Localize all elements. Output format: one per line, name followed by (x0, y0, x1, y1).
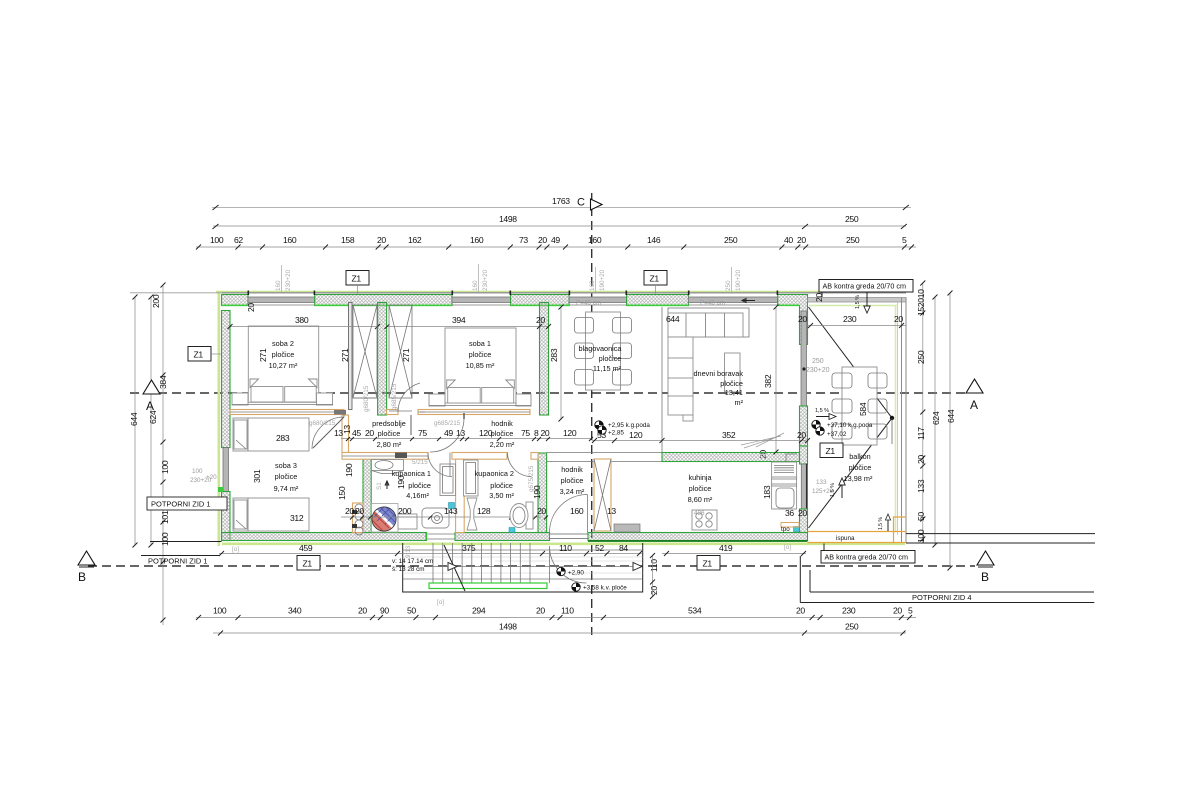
svg-text:160: 160 (588, 235, 602, 245)
svg-text:340: 340 (288, 606, 302, 616)
svg-text:20: 20 (345, 506, 354, 516)
svg-text:4,16m²: 4,16m² (406, 491, 429, 500)
svg-text:B: B (78, 570, 86, 584)
svg-text:36: 36 (785, 508, 794, 518)
svg-text:250: 250 (812, 358, 824, 365)
svg-text:soba 2: soba 2 (272, 339, 294, 348)
svg-text:1498: 1498 (499, 622, 517, 632)
svg-text:84: 84 (619, 543, 628, 553)
svg-text:160: 160 (470, 235, 484, 245)
svg-text:382: 382 (763, 374, 773, 388)
svg-text:B: B (981, 570, 989, 584)
svg-text:2,80 m²: 2,80 m² (377, 440, 402, 449)
svg-text:2,20 m²: 2,20 m² (490, 440, 515, 449)
svg-text:200: 200 (151, 294, 161, 308)
svg-text:POTPORNI ZID 4: POTPORNI ZID 4 (912, 593, 972, 602)
svg-text:20: 20 (536, 606, 545, 616)
svg-text:1498: 1498 (499, 214, 517, 224)
svg-text:117: 117 (916, 427, 926, 440)
svg-text:pločice: pločice (599, 354, 622, 363)
svg-text:pločice: pločice (561, 476, 584, 485)
svg-text:380: 380 (295, 315, 309, 325)
svg-text:g680/215: g680/215 (309, 420, 336, 427)
svg-text:Z1: Z1 (194, 350, 204, 360)
svg-text:pločice: pločice (689, 484, 712, 493)
svg-text:312: 312 (290, 513, 304, 523)
svg-text:128: 128 (477, 506, 491, 516)
svg-text:250: 250 (724, 235, 738, 245)
svg-text:20: 20 (541, 428, 550, 438)
svg-text:20: 20 (798, 508, 807, 518)
svg-text:644: 644 (129, 412, 139, 426)
svg-text:3,50 m²: 3,50 m² (489, 491, 514, 500)
svg-text:1763: 1763 (552, 196, 570, 206)
svg-text:49: 49 (551, 235, 560, 245)
svg-text:13: 13 (342, 425, 352, 434)
svg-text:100: 100 (213, 606, 227, 616)
svg-text:100: 100 (210, 235, 224, 245)
svg-text:8: 8 (534, 428, 539, 438)
svg-text:394: 394 (452, 315, 466, 325)
svg-text:45: 45 (352, 428, 361, 438)
svg-text:20: 20 (649, 586, 659, 595)
svg-text:balkon: balkon (849, 452, 871, 461)
svg-text:pločice: pločice (408, 481, 431, 490)
svg-text:384: 384 (158, 375, 168, 389)
svg-text:P=40 cm: P=40 cm (700, 300, 725, 307)
svg-text:162: 162 (408, 235, 422, 245)
svg-text:110: 110 (649, 559, 659, 572)
svg-text:271: 271 (401, 348, 411, 362)
svg-text:62: 62 (234, 235, 243, 245)
svg-text:250: 250 (725, 280, 732, 291)
svg-text:301: 301 (252, 469, 262, 483)
svg-text:624: 624 (931, 411, 941, 425)
svg-text:50: 50 (407, 606, 416, 616)
svg-text:C: C (577, 197, 585, 209)
svg-text:200: 200 (398, 506, 412, 516)
svg-text:pločice: pločice (720, 379, 743, 388)
svg-text:pločice: pločice (491, 429, 514, 438)
svg-text:190: 190 (396, 475, 406, 489)
svg-text:pločice: pločice (378, 429, 401, 438)
svg-text:100: 100 (160, 460, 170, 474)
svg-text:9 13: 9 13 (405, 545, 412, 558)
svg-text:[o]: [o] (232, 546, 239, 553)
svg-text:20: 20 (797, 235, 806, 245)
svg-text:10,85 m²: 10,85 m² (466, 361, 495, 370)
svg-text:40: 40 (784, 235, 793, 245)
svg-text:m²: m² (734, 398, 743, 407)
svg-text:pločice: pločice (469, 350, 492, 359)
svg-text:52: 52 (595, 543, 604, 553)
svg-text:5: 5 (902, 235, 907, 245)
svg-text:459: 459 (299, 543, 313, 553)
svg-text:+3,58 k.v. ploče: +3,58 k.v. ploče (583, 585, 627, 592)
svg-text:644: 644 (666, 314, 680, 324)
svg-text:+37,02: +37,02 (827, 431, 847, 438)
svg-text:pločice: pločice (849, 463, 872, 472)
svg-text:13,41: 13,41 (725, 388, 743, 397)
svg-text:9,74 m²: 9,74 m² (274, 484, 299, 493)
svg-text:644: 644 (946, 409, 956, 423)
svg-text:20: 20 (537, 506, 546, 516)
svg-text:soba 1: soba 1 (469, 339, 491, 348)
svg-text:230+20: 230+20 (285, 269, 292, 291)
svg-text:Z1: Z1 (650, 274, 660, 284)
svg-text:20: 20 (893, 606, 902, 616)
svg-text:160: 160 (275, 280, 282, 291)
svg-text:50: 50 (916, 512, 926, 521)
svg-text:20: 20 (797, 430, 806, 440)
svg-text:pločice: pločice (490, 481, 513, 490)
svg-text:+2,90: +2,90 (568, 570, 584, 577)
svg-text:250: 250 (916, 350, 926, 364)
svg-text:190: 190 (532, 485, 542, 499)
svg-text:Z1: Z1 (303, 559, 313, 569)
svg-text:190+20: 190+20 (599, 269, 606, 291)
svg-text:v: 14 17.14 cm: v: 14 17.14 cm (392, 558, 433, 565)
svg-text:90: 90 (380, 606, 389, 616)
svg-text:AB kontra greda 20/70 cm: AB kontra greda 20/70 cm (825, 553, 909, 562)
svg-text:kupaonica 2: kupaonica 2 (475, 469, 514, 478)
svg-text:20: 20 (358, 606, 367, 616)
svg-text:20: 20 (365, 428, 374, 438)
svg-text:160: 160 (570, 506, 584, 516)
svg-text:ispuna: ispuna (836, 535, 855, 542)
svg-text:POTPORNI ZID 1: POTPORNI ZID 1 (148, 557, 208, 566)
svg-text:POTPORNI ZID 1: POTPORNI ZID 1 (151, 500, 211, 509)
svg-text:20: 20 (355, 506, 364, 516)
svg-text:160: 160 (283, 235, 297, 245)
svg-text:534: 534 (688, 606, 702, 616)
svg-text:152010: 152010 (916, 289, 926, 316)
svg-text:271: 271 (340, 348, 350, 362)
svg-text:49: 49 (444, 428, 453, 438)
svg-text:hodnik: hodnik (561, 465, 583, 474)
svg-text:20: 20 (377, 235, 386, 245)
svg-text:250: 250 (846, 235, 860, 245)
svg-text:75: 75 (521, 428, 530, 438)
svg-text:230: 230 (842, 606, 856, 616)
svg-text:13,98 m²: 13,98 m² (844, 474, 873, 483)
svg-text:+20: +20 (206, 474, 217, 481)
svg-text:dnevni boravak: dnevni boravak (694, 369, 744, 378)
svg-text:tpo: tpo (781, 526, 790, 533)
svg-text:133: 133 (816, 479, 827, 486)
svg-text:13: 13 (607, 506, 616, 516)
svg-text:110: 110 (559, 543, 572, 553)
svg-text:10,27 m²: 10,27 m² (269, 361, 298, 370)
svg-text:20: 20 (536, 315, 545, 325)
svg-text:[o]: [o] (784, 544, 791, 551)
svg-text:soba 3: soba 3 (275, 461, 297, 470)
svg-text:S1: S1 (376, 482, 383, 490)
svg-text:AB kontra greda 20/70 cm: AB kontra greda 20/70 cm (823, 282, 907, 291)
svg-text:kuhinja: kuhinja (688, 473, 712, 482)
svg-text:20: 20 (796, 606, 805, 616)
svg-text:1,5 %: 1,5 % (815, 408, 829, 414)
svg-text:271: 271 (258, 348, 268, 362)
svg-text:100: 100 (192, 468, 203, 475)
svg-text:352: 352 (722, 430, 736, 440)
svg-text:11,15 m²: 11,15 m² (593, 364, 622, 373)
svg-text:20: 20 (798, 314, 807, 324)
svg-text:A: A (146, 399, 154, 413)
svg-text:20: 20 (916, 455, 926, 464)
svg-text:[o]: [o] (437, 599, 444, 606)
svg-text:75: 75 (418, 428, 427, 438)
svg-text:146: 146 (647, 235, 661, 245)
svg-text:100: 100 (916, 529, 926, 543)
svg-text:5: 5 (908, 606, 913, 616)
svg-text:250: 250 (845, 622, 859, 632)
svg-text:g685/215: g685/215 (391, 383, 398, 410)
svg-text:Z1: Z1 (703, 559, 713, 569)
svg-text:g685/215: g685/215 (434, 420, 461, 427)
svg-text:584: 584 (858, 402, 868, 416)
svg-text:+2,95 k.g.poda: +2,95 k.g.poda (608, 422, 650, 429)
svg-text:8,60 m²: 8,60 m² (688, 495, 713, 504)
svg-text:+2,85: +2,85 (608, 430, 624, 437)
svg-text:predsoblje: predsoblje (372, 419, 406, 428)
svg-text:š: 13 28 cm: š: 13 28 cm (392, 566, 425, 573)
svg-text:120: 120 (563, 428, 577, 438)
svg-text:pločice: pločice (275, 472, 298, 481)
svg-text:P=40 cm: P=40 cm (576, 300, 601, 307)
svg-text:294: 294 (472, 606, 486, 616)
svg-text:160: 160 (472, 280, 479, 291)
svg-text:20: 20 (246, 303, 256, 312)
svg-text:101: 101 (160, 510, 170, 524)
svg-text:Z1: Z1 (352, 274, 362, 284)
svg-text:283: 283 (276, 433, 290, 443)
svg-text:283: 283 (549, 348, 559, 362)
svg-text:20: 20 (538, 235, 547, 245)
svg-text:1,5 %: 1,5 % (830, 483, 836, 497)
svg-text:5/215: 5/215 (412, 459, 428, 466)
svg-text:pločice: pločice (272, 350, 295, 359)
svg-text:190: 190 (344, 463, 354, 477)
svg-text:150: 150 (337, 486, 347, 500)
svg-text:230: 230 (843, 314, 857, 324)
svg-text:183: 183 (762, 485, 772, 499)
svg-text:133: 133 (916, 479, 926, 493)
svg-text:160: 160 (589, 280, 596, 291)
svg-text:blagovaonica: blagovaonica (578, 344, 622, 353)
svg-text:110: 110 (561, 606, 574, 616)
svg-text:1,5 %: 1,5 % (878, 517, 884, 530)
svg-text:436: 436 (694, 510, 705, 517)
svg-text:158: 158 (341, 235, 355, 245)
svg-text:A: A (970, 398, 978, 412)
svg-text:73: 73 (519, 235, 528, 245)
svg-text:hodnik: hodnik (491, 419, 513, 428)
svg-text:250: 250 (845, 214, 859, 224)
svg-text:419: 419 (719, 543, 733, 553)
svg-text:230+20: 230+20 (482, 269, 489, 291)
svg-text:375: 375 (462, 543, 476, 553)
svg-text:1,5 %: 1,5 % (855, 295, 861, 309)
svg-text:230+20: 230+20 (806, 367, 830, 374)
svg-text:g680/215: g680/215 (363, 385, 370, 412)
svg-text:100: 100 (160, 532, 170, 546)
svg-text:+37,10 k.g.poda: +37,10 k.g.poda (827, 422, 873, 429)
svg-text:190+20: 190+20 (735, 269, 742, 291)
svg-text:Z1: Z1 (826, 446, 836, 456)
svg-text:120: 120 (479, 428, 493, 438)
svg-text:120: 120 (629, 430, 643, 440)
svg-text:20: 20 (894, 314, 903, 324)
